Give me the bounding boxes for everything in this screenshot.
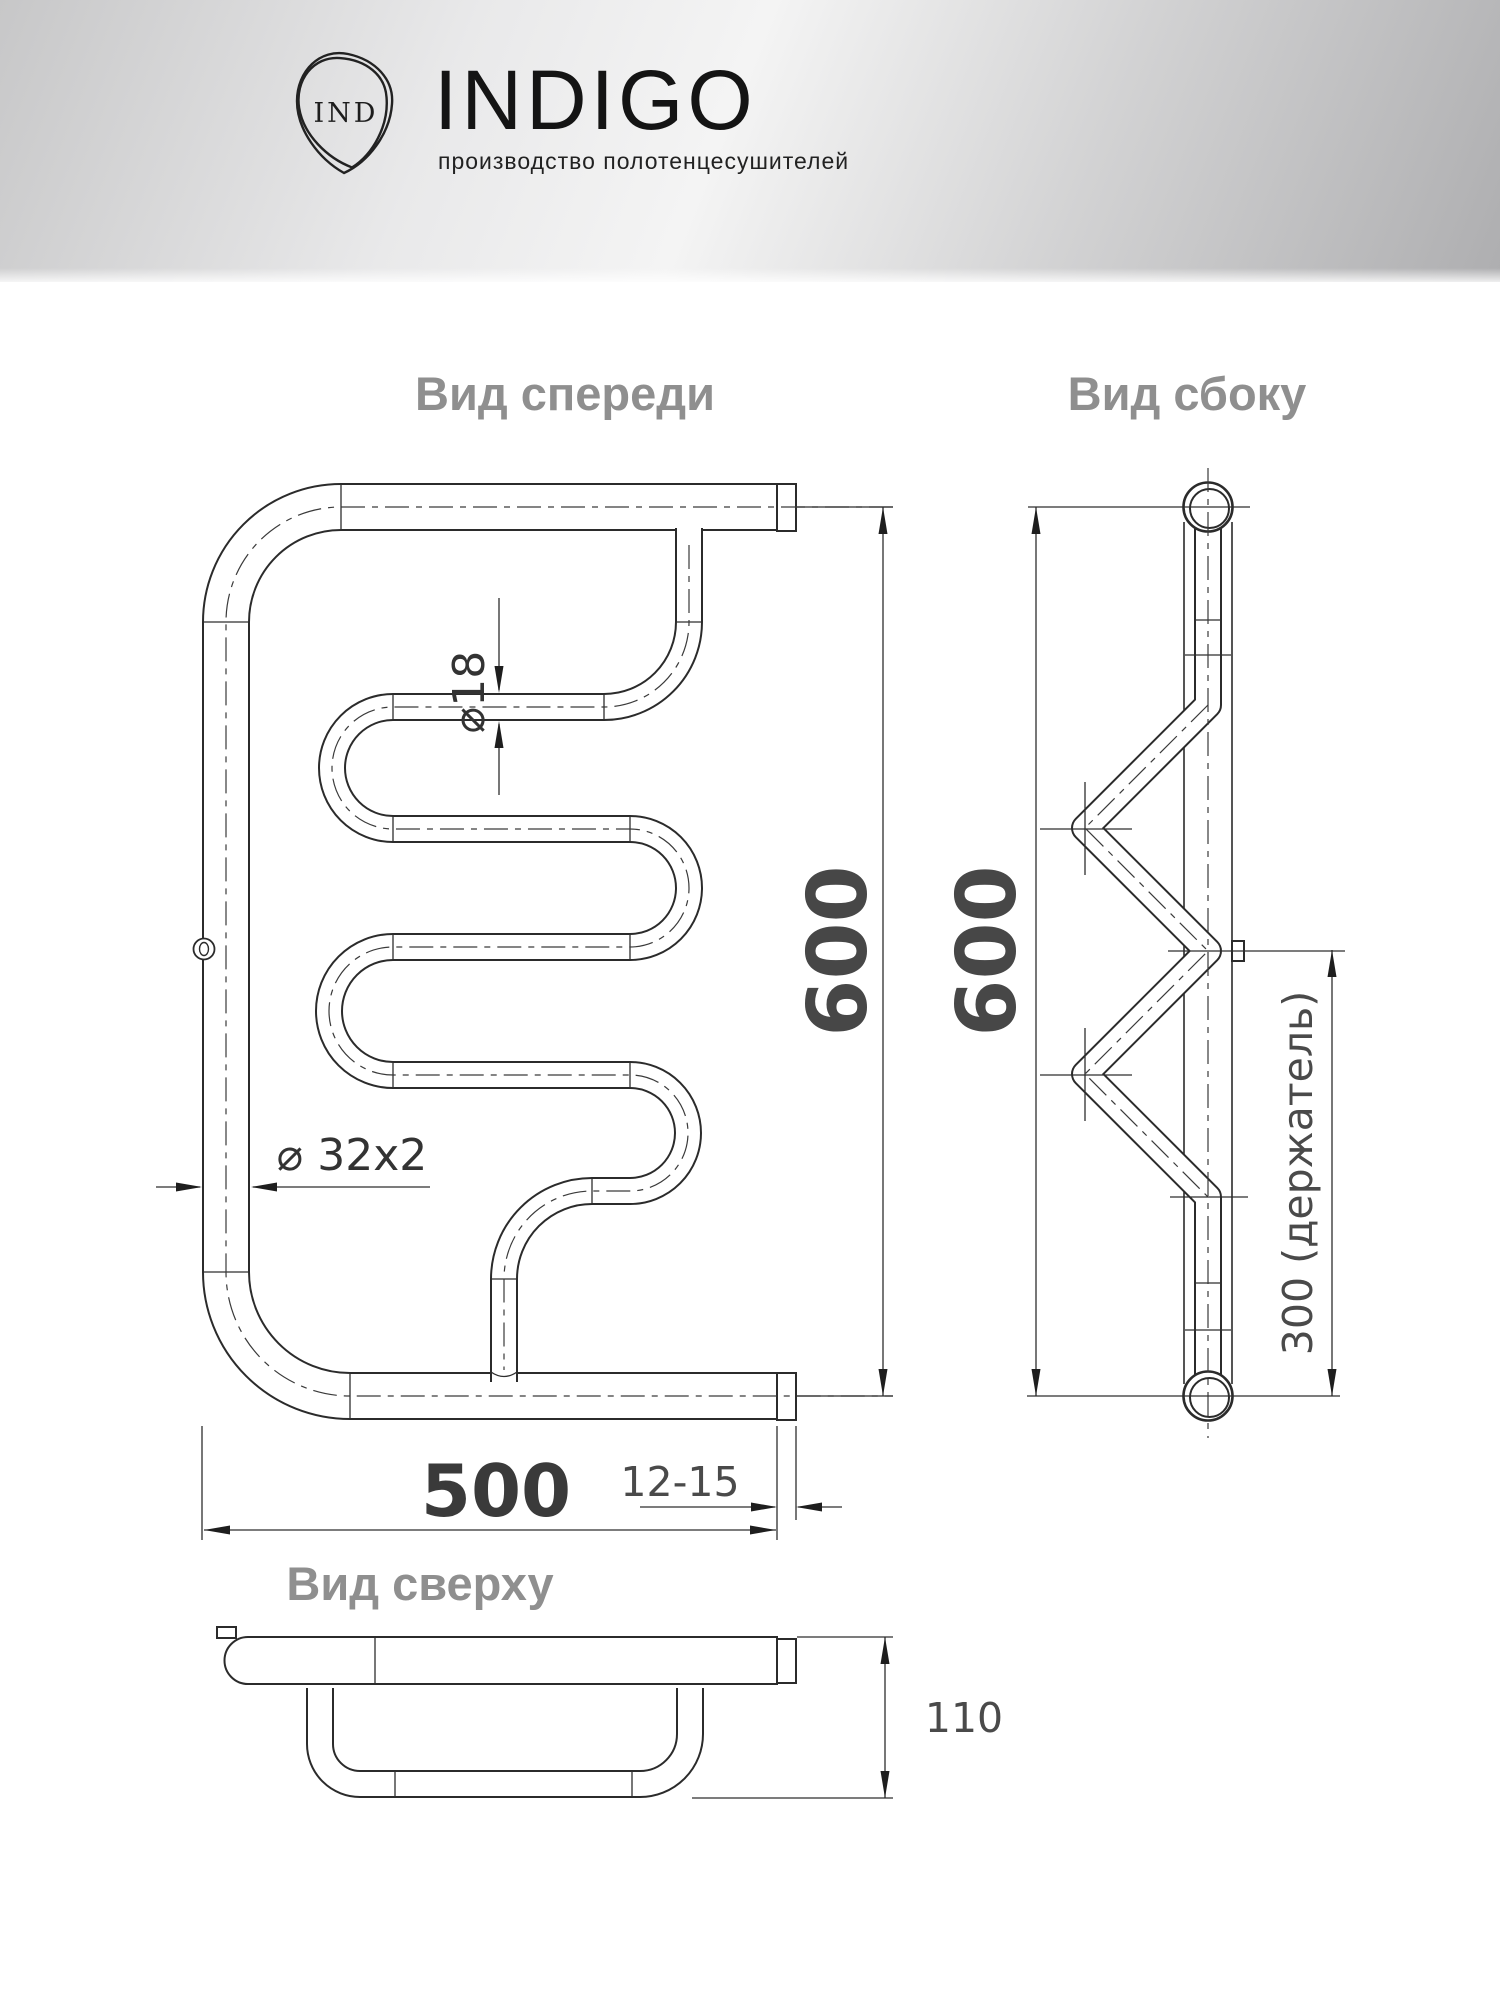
front-view-title: Вид спереди <box>415 367 715 420</box>
top-view-end-cap <box>777 1639 796 1683</box>
technical-drawing: Вид спереди Вид сбоку Вид сверху ⌀18 <box>0 0 1500 2000</box>
wall-bracket-icon <box>194 939 215 960</box>
page: { "header": { "brand": "INDIGO", "monogr… <box>0 0 1500 2000</box>
cap-length-dimension: 12-15 <box>620 1426 842 1520</box>
width-label: 500 <box>421 1449 571 1533</box>
side-view-title: Вид сбоку <box>1068 367 1307 420</box>
depth-label: 110 <box>925 1694 1003 1742</box>
side-height-label: 600 <box>940 865 1035 1036</box>
pipe-diameter-label: ⌀ 32x2 <box>277 1130 428 1181</box>
coil-diameter-label: ⌀18 <box>444 651 495 733</box>
coil-diameter-dimension: ⌀18 <box>444 598 504 795</box>
pipe-diameter-dimension: ⌀ 32x2 <box>156 1130 430 1192</box>
front-height-dimension: 600 <box>791 507 893 1396</box>
side-view: 600 300 (держатель) <box>940 468 1345 1438</box>
holder-dimension: 300 (держатель) <box>1274 950 1337 1396</box>
top-view-bracket-stub <box>217 1627 236 1638</box>
top-view: 110 <box>217 1627 1003 1798</box>
cap-length-label: 12-15 <box>620 1458 739 1506</box>
top-view-bar <box>225 1637 778 1684</box>
top-view-title: Вид сверху <box>286 1557 553 1610</box>
front-height-label: 600 <box>791 865 886 1036</box>
front-view: ⌀18 ⌀ 32x2 600 500 12-15 <box>156 484 893 1540</box>
holder-label: 300 (держатель) <box>1274 991 1322 1355</box>
